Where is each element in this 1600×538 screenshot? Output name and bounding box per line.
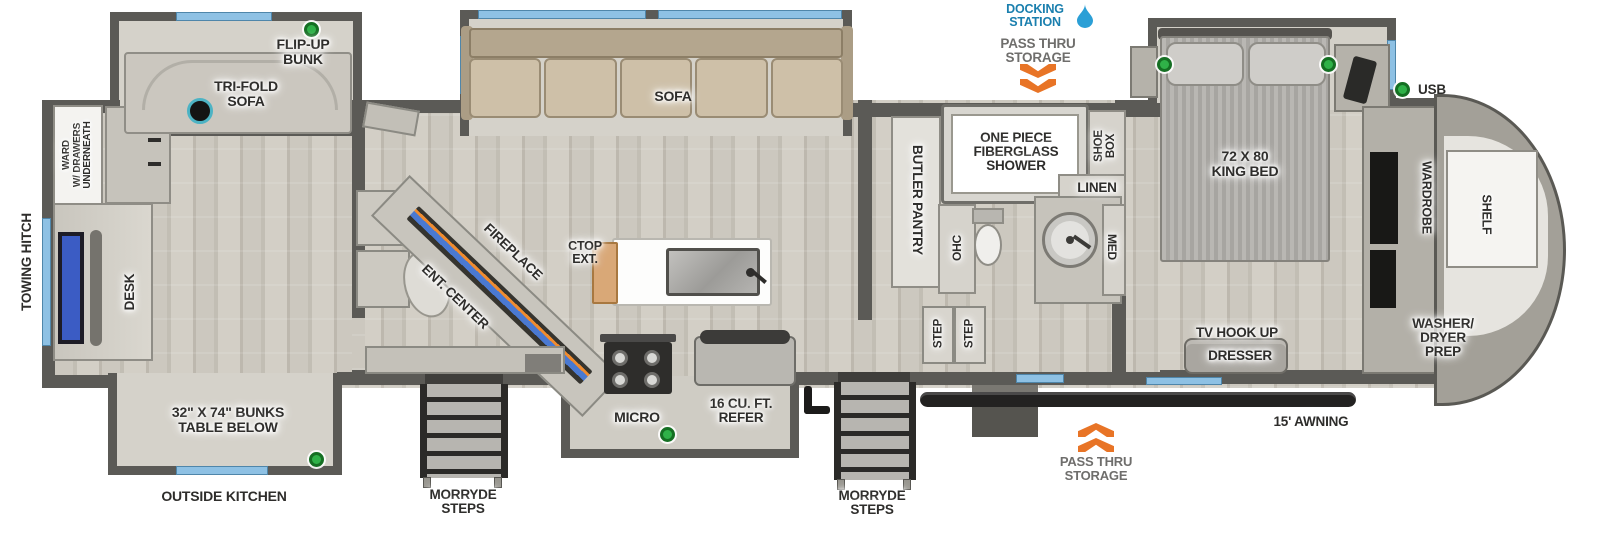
ctop-ext-label: CTOP EXT. [557, 236, 613, 270]
refrigerator-lid [700, 330, 790, 344]
wardrobe-tv-panel [1370, 250, 1396, 308]
window [658, 10, 842, 19]
cabinet-handle [148, 138, 161, 142]
sofa-label: SOFA [633, 87, 713, 105]
awning-label: 15' AWNING [1256, 413, 1366, 431]
pass-thru-arrow-down-icon [1020, 64, 1056, 94]
rear-doorway [352, 318, 365, 370]
window [176, 466, 268, 475]
morryde-steps-left-label: MORRYDE STEPS [413, 484, 513, 520]
shoe-box-label: SHOE BOX [1089, 122, 1121, 170]
dresser-label: DRESSER [1190, 348, 1290, 364]
side-cabinet [356, 250, 410, 308]
usb-label: USB [1410, 82, 1454, 98]
range-vent [600, 334, 676, 342]
morryde-steps-left [420, 384, 508, 478]
washer-dryer-label: WASHER/ DRYER PREP [1398, 312, 1488, 364]
pillow [1166, 42, 1244, 86]
rv-floorplan: TOWING HITCH WARD W/ DRAWERS UNDERNEATH … [0, 0, 1600, 538]
led-indicator [1157, 57, 1172, 72]
ward-label: WARD W/ DRAWERS UNDERNEATH [58, 109, 98, 201]
window [478, 10, 646, 19]
med-label: MED [1105, 227, 1119, 267]
wardrobe-tv-panel [1370, 152, 1398, 244]
entry-grab-handle [804, 406, 830, 414]
docking-station-label: DOCKING STATION [990, 0, 1080, 32]
bunks-label: 32" X 74" BUNKS TABLE BELOW [148, 402, 308, 438]
flip-up-bunk-label: FLIP-UP BUNK [253, 34, 353, 70]
toilet-tank [972, 208, 1004, 224]
wardrobe-label: WARDROBE [1419, 150, 1434, 246]
tri-fold-sofa-label: TRI-FOLD SOFA [191, 76, 301, 112]
towing-hitch-label: TOWING HITCH [17, 192, 37, 332]
led-indicator [1321, 57, 1336, 72]
outside-kitchen-label: OUTSIDE KITCHEN [134, 487, 314, 505]
morryde-steps-right-label: MORRYDE STEPS [822, 485, 922, 521]
toilet-bowl [974, 224, 1002, 266]
led-indicator-usb [1395, 82, 1410, 97]
refer-label: 16 CU. FT. REFER [696, 394, 786, 428]
cabinet-handle [148, 162, 161, 166]
pass-thru-arrow-up-icon [1078, 422, 1114, 452]
king-bed-label: 72 X 80 KING BED [1190, 146, 1300, 182]
led-indicator [660, 427, 675, 442]
ohc-label: OHC [950, 228, 964, 268]
counter-inset [525, 354, 561, 372]
shower-label: ONE PIECE FIBERGLASS SHOWER [956, 126, 1076, 178]
rear-bottom-wall [42, 375, 116, 388]
sofa-back [469, 28, 843, 58]
desk-monitor [58, 232, 84, 344]
morryde-steps-right [834, 382, 916, 480]
window [1146, 377, 1222, 385]
tv-hook-up-label: TV HOOK UP [1177, 325, 1297, 341]
shelf-label: SHELF [1479, 185, 1494, 245]
window [176, 12, 272, 21]
window [42, 218, 51, 346]
pass-thru-top-label: PASS THRU STORAGE [988, 35, 1088, 67]
range-cooktop [604, 342, 672, 394]
living-hall-divider-wall [858, 100, 872, 320]
step-1-label: STEP [933, 313, 946, 355]
pillow [1248, 42, 1326, 86]
micro-label: MICRO [602, 408, 672, 426]
butler-pantry-label: BUTLER PANTRY [908, 130, 926, 270]
desk-tray [90, 230, 102, 346]
awning-bar [920, 392, 1356, 407]
linen-label: LINEN [1062, 180, 1132, 196]
desk-label: DESK [122, 262, 138, 322]
nightstand [1130, 46, 1158, 98]
window [1016, 374, 1064, 383]
led-indicator [309, 452, 324, 467]
step-2-label: STEP [964, 313, 977, 355]
pass-thru-bottom-label: PASS THRU STORAGE [1046, 452, 1146, 486]
